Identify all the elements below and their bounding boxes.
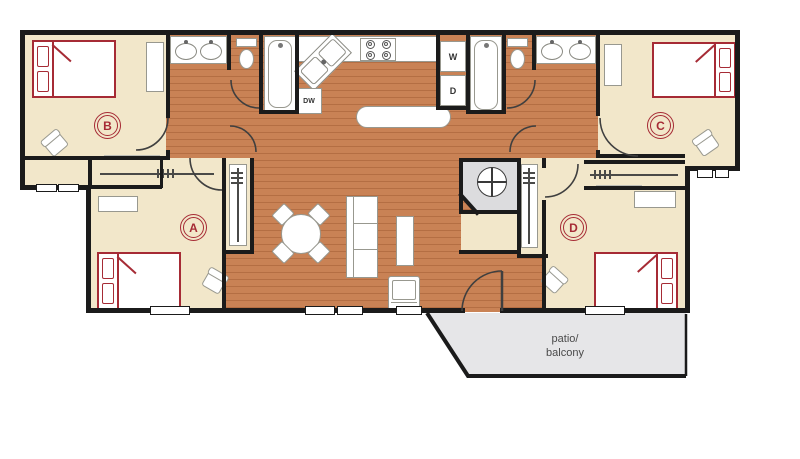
window xyxy=(36,184,57,192)
armchair xyxy=(388,276,420,310)
wall xyxy=(436,106,470,110)
wall xyxy=(427,308,465,313)
stove xyxy=(360,38,396,61)
bed-divider xyxy=(52,42,54,96)
window xyxy=(585,306,625,315)
washer: W xyxy=(440,41,466,72)
wall xyxy=(20,30,25,190)
wall xyxy=(517,158,521,258)
rod-tick xyxy=(609,170,611,179)
dryer: D xyxy=(440,75,466,106)
toilet xyxy=(504,38,531,70)
wall xyxy=(596,30,600,116)
patio-label-line2: balcony xyxy=(510,346,620,360)
rod-tick xyxy=(167,169,169,178)
wall xyxy=(500,308,545,313)
window xyxy=(58,184,79,192)
dishwasher-label: DW xyxy=(303,98,315,105)
window xyxy=(337,306,363,315)
wall xyxy=(532,34,536,70)
wall xyxy=(466,34,470,110)
bed xyxy=(97,252,181,310)
bed-fold xyxy=(637,255,657,273)
pantry-floor xyxy=(461,212,517,252)
wall xyxy=(222,250,254,254)
rod-tick xyxy=(231,172,243,174)
burner xyxy=(366,51,375,60)
bed-divider xyxy=(117,254,119,308)
toilet-bowl xyxy=(239,49,254,69)
bathroom-sink xyxy=(175,43,197,60)
dresser xyxy=(98,196,138,212)
wall xyxy=(459,158,463,214)
pillow xyxy=(719,48,731,68)
wall xyxy=(584,160,685,164)
pillow xyxy=(719,72,731,92)
bed-fold xyxy=(52,44,72,62)
wall xyxy=(598,154,685,158)
toilet-tank xyxy=(507,38,528,47)
burner xyxy=(366,40,375,49)
rod-tick xyxy=(157,169,159,178)
pillow xyxy=(661,283,673,304)
bathtub xyxy=(264,36,296,112)
room-label-a: A xyxy=(180,214,207,241)
rod-tick xyxy=(172,169,174,178)
wall xyxy=(86,185,162,189)
sofa-cushion-divider xyxy=(354,249,377,250)
rod-tick xyxy=(523,182,535,184)
wall xyxy=(250,158,254,254)
dishwasher: DW xyxy=(296,88,322,114)
bed-divider xyxy=(656,254,658,308)
room-label-c-text: C xyxy=(656,120,665,132)
bed-fold xyxy=(117,256,137,274)
bed-divider xyxy=(714,44,716,96)
closet-rod xyxy=(528,168,530,244)
closet-rod xyxy=(237,168,239,242)
wall xyxy=(685,166,690,313)
wall xyxy=(295,34,299,114)
wall xyxy=(166,150,170,160)
wall xyxy=(86,308,427,313)
window xyxy=(396,306,422,315)
wall xyxy=(166,34,170,118)
wall xyxy=(459,210,517,214)
rod-tick xyxy=(231,177,243,179)
room-label-d-text: D xyxy=(569,222,578,234)
wall xyxy=(584,186,685,190)
armchair-back xyxy=(391,302,417,303)
wall xyxy=(459,250,517,254)
vanity xyxy=(536,36,596,64)
sofa xyxy=(346,196,378,278)
pillow xyxy=(37,71,49,92)
window xyxy=(697,169,713,178)
patio-label: patio/ balcony xyxy=(510,332,620,360)
wall xyxy=(542,158,546,168)
washer-label: W xyxy=(449,52,458,62)
rod-tick xyxy=(599,170,601,179)
pillow xyxy=(37,46,49,67)
rod-tick xyxy=(594,170,596,179)
dresser xyxy=(146,42,164,92)
rod-tick xyxy=(231,182,243,184)
water-heater xyxy=(477,167,507,197)
wall xyxy=(160,158,163,188)
toilet xyxy=(233,38,260,70)
wall xyxy=(222,250,226,312)
vanity xyxy=(170,36,227,64)
wall xyxy=(259,34,263,114)
room-label-b: B xyxy=(94,112,121,139)
wall xyxy=(222,158,226,254)
room-label-c: C xyxy=(647,112,674,139)
wall xyxy=(20,30,740,35)
wall xyxy=(227,34,231,70)
bathroom-sink xyxy=(200,43,222,60)
bed xyxy=(32,40,116,98)
bed xyxy=(594,252,678,310)
dryer-label: D xyxy=(450,86,457,96)
armchair-seat xyxy=(392,280,416,300)
room-label-d: D xyxy=(560,214,587,241)
wall xyxy=(259,110,299,114)
wall xyxy=(24,156,166,160)
bathtub-basin xyxy=(268,40,292,108)
toilet-tank xyxy=(236,38,257,47)
window xyxy=(305,306,335,315)
rod-tick xyxy=(523,172,535,174)
bathroom-sink xyxy=(569,43,591,60)
wall xyxy=(502,34,506,114)
wall xyxy=(517,254,548,258)
wall xyxy=(436,34,440,110)
patio-label-line1: patio/ xyxy=(510,332,620,346)
window xyxy=(150,306,190,315)
wall xyxy=(88,158,92,188)
tv-console xyxy=(396,216,414,266)
wall xyxy=(735,30,740,171)
wall xyxy=(86,185,91,313)
toilet-bowl xyxy=(510,49,525,69)
rod-tick xyxy=(604,170,606,179)
sofa-cushion-divider xyxy=(354,223,377,224)
pillow xyxy=(661,258,673,279)
dresser xyxy=(604,44,622,86)
sofa-back xyxy=(347,197,354,277)
room-label-a-text: A xyxy=(189,222,198,234)
window xyxy=(715,169,729,178)
room-label-b-text: B xyxy=(103,120,112,132)
bathtub-basin xyxy=(474,40,498,110)
rod-tick xyxy=(523,177,535,179)
bed-fold xyxy=(695,45,715,63)
burner xyxy=(382,51,391,60)
wall xyxy=(459,158,517,162)
floor-plan: patio/ balcony B A xyxy=(0,0,800,459)
wall xyxy=(466,110,506,114)
bed xyxy=(652,42,736,98)
pillow xyxy=(102,283,114,304)
bathtub xyxy=(470,36,502,114)
dresser xyxy=(634,191,676,208)
bathroom-sink xyxy=(541,43,563,60)
pillow xyxy=(102,258,114,279)
burner xyxy=(382,40,391,49)
